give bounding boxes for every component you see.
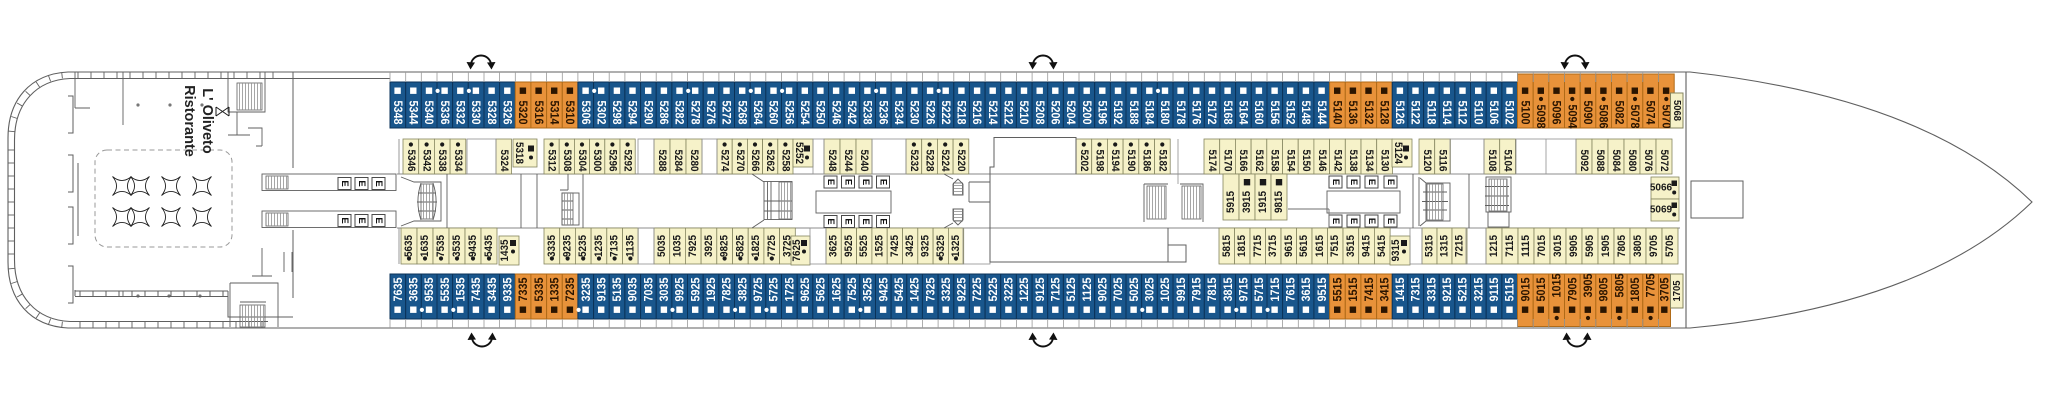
svg-text:7435: 7435 xyxy=(469,277,483,301)
svg-text:5130: 5130 xyxy=(1379,150,1391,172)
svg-text:3325: 3325 xyxy=(939,277,953,301)
svg-text:5725: 5725 xyxy=(767,277,781,301)
svg-text:5078: 5078 xyxy=(1628,105,1642,129)
svg-text:L' Oliveto: L' Oliveto xyxy=(199,88,215,154)
svg-text:5074: 5074 xyxy=(1644,101,1658,125)
svg-text:5298: 5298 xyxy=(610,101,624,125)
svg-text:5104: 5104 xyxy=(1502,150,1514,173)
svg-text:5282: 5282 xyxy=(673,101,687,125)
svg-text:5248: 5248 xyxy=(826,150,838,172)
svg-text:5342: 5342 xyxy=(421,150,433,172)
svg-text:5225: 5225 xyxy=(986,277,1000,301)
svg-text:1805: 1805 xyxy=(1628,277,1642,301)
svg-text:5146: 5146 xyxy=(1316,150,1328,172)
svg-text:5330: 5330 xyxy=(469,101,483,125)
svg-text:3915: 3915 xyxy=(1241,191,1253,213)
svg-text:3515: 3515 xyxy=(1345,235,1357,257)
svg-text:5025: 5025 xyxy=(1127,277,1141,301)
svg-text:5242: 5242 xyxy=(845,101,859,125)
svg-text:5425: 5425 xyxy=(892,277,906,301)
svg-text:5262: 5262 xyxy=(764,150,776,172)
svg-text:3335: 3335 xyxy=(546,235,558,257)
svg-text:5190: 5190 xyxy=(1125,150,1137,172)
svg-text:5314: 5314 xyxy=(547,101,561,125)
svg-text:5156: 5156 xyxy=(1268,101,1282,125)
svg-text:9515: 9515 xyxy=(1315,277,1329,301)
svg-text:5336: 5336 xyxy=(438,101,452,125)
svg-text:5272: 5272 xyxy=(720,101,734,125)
svg-text:5235: 5235 xyxy=(577,235,589,257)
svg-text:5302: 5302 xyxy=(594,101,608,125)
svg-text:9915: 9915 xyxy=(1174,277,1188,301)
svg-text:3435: 3435 xyxy=(485,277,499,301)
svg-text:3035: 3035 xyxy=(657,277,671,301)
svg-text:3635: 3635 xyxy=(407,277,421,301)
svg-text:5258: 5258 xyxy=(779,150,791,172)
svg-text:1415: 1415 xyxy=(1393,277,1407,301)
svg-text:9705: 9705 xyxy=(1648,235,1660,257)
svg-text:1335: 1335 xyxy=(547,277,561,301)
svg-text:5180: 5180 xyxy=(1158,101,1172,125)
svg-text:5625: 5625 xyxy=(814,277,828,301)
svg-text:5296: 5296 xyxy=(606,150,618,172)
svg-text:5218: 5218 xyxy=(955,101,969,125)
svg-text:5094: 5094 xyxy=(1565,105,1579,129)
svg-text:5176: 5176 xyxy=(1190,101,1204,125)
svg-text:E: E xyxy=(878,218,889,224)
svg-text:5066: 5066 xyxy=(1650,183,1673,194)
svg-text:5138: 5138 xyxy=(1347,150,1359,172)
svg-text:5126: 5126 xyxy=(1393,101,1407,125)
svg-text:5122: 5122 xyxy=(1409,101,1423,125)
svg-text:9135: 9135 xyxy=(594,277,608,301)
svg-text:5086: 5086 xyxy=(1597,105,1611,129)
svg-text:5212: 5212 xyxy=(1002,101,1016,125)
svg-text:5276: 5276 xyxy=(704,101,718,125)
svg-text:5166: 5166 xyxy=(1237,150,1249,172)
svg-text:5340: 5340 xyxy=(422,101,436,125)
svg-text:5069: 5069 xyxy=(1650,205,1673,216)
svg-text:7235: 7235 xyxy=(563,277,577,301)
svg-text:5084: 5084 xyxy=(1610,150,1622,173)
svg-text:7525: 7525 xyxy=(845,277,859,301)
svg-text:E: E xyxy=(1366,179,1377,185)
svg-text:E: E xyxy=(339,217,350,223)
svg-text:5515: 5515 xyxy=(1330,277,1344,301)
svg-text:5192: 5192 xyxy=(1111,101,1125,125)
svg-text:9425: 9425 xyxy=(876,277,890,301)
svg-text:3025: 3025 xyxy=(1143,277,1157,301)
svg-text:5236: 5236 xyxy=(876,101,890,125)
svg-text:5196: 5196 xyxy=(1096,101,1110,125)
svg-text:1705: 1705 xyxy=(1671,280,1683,301)
svg-text:5088: 5088 xyxy=(1594,150,1606,172)
svg-text:1235: 1235 xyxy=(593,235,605,257)
svg-text:5635: 5635 xyxy=(403,235,415,257)
svg-text:5184: 5184 xyxy=(1143,101,1157,125)
svg-text:5415: 5415 xyxy=(1376,235,1388,257)
svg-text:5035: 5035 xyxy=(656,235,668,257)
svg-text:3235: 3235 xyxy=(579,277,593,301)
svg-text:5238: 5238 xyxy=(861,101,875,125)
svg-text:7125: 7125 xyxy=(1049,277,1063,301)
svg-text:1025: 1025 xyxy=(1158,277,1172,301)
svg-text:5178: 5178 xyxy=(1174,101,1188,125)
svg-text:7015: 7015 xyxy=(1536,235,1548,257)
svg-text:5186: 5186 xyxy=(1141,150,1153,172)
svg-text:5250: 5250 xyxy=(814,101,828,125)
svg-text:1915: 1915 xyxy=(1257,191,1269,213)
svg-text:1615: 1615 xyxy=(1314,235,1326,257)
svg-text:5015: 5015 xyxy=(1534,277,1548,301)
svg-text:5320: 5320 xyxy=(516,101,530,125)
svg-text:5615: 5615 xyxy=(1298,235,1310,257)
svg-text:5216: 5216 xyxy=(970,101,984,125)
svg-text:1925: 1925 xyxy=(704,277,718,301)
svg-text:9615: 9615 xyxy=(1283,235,1295,257)
svg-text:5162: 5162 xyxy=(1253,150,1265,172)
svg-text:7335: 7335 xyxy=(516,277,530,301)
svg-text:7415: 7415 xyxy=(1362,277,1376,301)
svg-text:5228: 5228 xyxy=(924,150,936,172)
svg-text:1625: 1625 xyxy=(829,277,843,301)
svg-text:5102: 5102 xyxy=(1503,101,1517,125)
svg-text:3705: 3705 xyxy=(1658,277,1672,301)
svg-text:1125: 1125 xyxy=(1080,277,1094,301)
svg-text:E: E xyxy=(825,218,836,224)
svg-text:9235: 9235 xyxy=(562,235,574,257)
svg-text:5286: 5286 xyxy=(657,101,671,125)
svg-text:E: E xyxy=(1385,179,1396,185)
svg-text:5310: 5310 xyxy=(563,101,577,125)
svg-text:5214: 5214 xyxy=(986,101,1000,125)
svg-text:5326: 5326 xyxy=(500,100,514,124)
svg-text:5144: 5144 xyxy=(1315,101,1329,125)
svg-text:5112: 5112 xyxy=(1456,101,1470,125)
svg-text:5288: 5288 xyxy=(656,150,668,172)
svg-text:3815: 3815 xyxy=(1221,277,1235,301)
svg-text:5260: 5260 xyxy=(767,101,781,125)
svg-text:5220: 5220 xyxy=(955,150,967,172)
svg-text:5132: 5132 xyxy=(1362,101,1376,125)
svg-text:9435: 9435 xyxy=(467,235,479,257)
svg-text:5148: 5148 xyxy=(1299,101,1313,125)
svg-text:1535: 1535 xyxy=(454,277,468,301)
svg-text:5164: 5164 xyxy=(1237,101,1251,125)
svg-text:3215: 3215 xyxy=(1471,277,1485,301)
svg-text:3415: 3415 xyxy=(1377,277,1391,301)
svg-text:7425: 7425 xyxy=(889,235,901,257)
svg-text:5266: 5266 xyxy=(749,150,761,172)
svg-text:5142: 5142 xyxy=(1331,150,1343,172)
svg-text:9815: 9815 xyxy=(1273,191,1285,213)
svg-text:1315: 1315 xyxy=(1439,235,1451,257)
svg-text:E: E xyxy=(843,179,854,185)
svg-text:E: E xyxy=(356,180,367,186)
svg-text:5135: 5135 xyxy=(610,277,624,301)
svg-text:9015: 9015 xyxy=(1518,277,1532,301)
svg-text:3925: 3925 xyxy=(703,235,715,257)
svg-text:5136: 5136 xyxy=(1346,101,1360,125)
svg-text:5304: 5304 xyxy=(576,150,588,173)
svg-text:5905: 5905 xyxy=(1584,235,1596,257)
svg-text:7115: 7115 xyxy=(1504,235,1516,257)
svg-text:5316: 5316 xyxy=(532,101,546,125)
svg-text:5318: 5318 xyxy=(513,142,525,164)
svg-text:5256: 5256 xyxy=(782,101,796,125)
svg-text:5110: 5110 xyxy=(1471,101,1485,125)
svg-text:1525: 1525 xyxy=(874,235,886,257)
svg-text:5344: 5344 xyxy=(407,101,421,125)
svg-text:3805: 3805 xyxy=(1632,235,1644,257)
svg-text:5170: 5170 xyxy=(1222,150,1234,172)
svg-text:9715: 9715 xyxy=(1237,277,1251,301)
svg-text:5100: 5100 xyxy=(1518,101,1532,125)
svg-text:5334: 5334 xyxy=(452,150,464,173)
svg-text:5140: 5140 xyxy=(1330,101,1344,125)
svg-text:9325: 9325 xyxy=(919,235,931,257)
svg-text:7635: 7635 xyxy=(391,277,405,301)
svg-text:5172: 5172 xyxy=(1205,101,1219,125)
svg-text:9125: 9125 xyxy=(1033,277,1047,301)
svg-text:5325: 5325 xyxy=(935,235,947,257)
svg-text:5134: 5134 xyxy=(1363,150,1375,173)
svg-text:1425: 1425 xyxy=(908,277,922,301)
svg-text:5254: 5254 xyxy=(798,101,812,125)
svg-text:3535: 3535 xyxy=(451,235,463,257)
svg-text:9905: 9905 xyxy=(1568,235,1580,257)
svg-text:5274: 5274 xyxy=(719,150,731,173)
svg-text:5315: 5315 xyxy=(1424,235,1436,257)
svg-text:5188: 5188 xyxy=(1127,101,1141,125)
svg-text:5106: 5106 xyxy=(1487,101,1501,125)
svg-text:5328: 5328 xyxy=(485,101,499,125)
svg-text:5160: 5160 xyxy=(1252,101,1266,125)
svg-text:5152: 5152 xyxy=(1283,101,1297,125)
svg-text:5200: 5200 xyxy=(1080,101,1094,125)
svg-text:7925: 7925 xyxy=(687,235,699,257)
svg-text:5114: 5114 xyxy=(1440,101,1454,125)
svg-text:5125: 5125 xyxy=(1064,277,1078,301)
svg-text:7225: 7225 xyxy=(970,277,984,301)
svg-text:5294: 5294 xyxy=(626,101,640,125)
svg-text:7325: 7325 xyxy=(923,277,937,301)
svg-text:7025: 7025 xyxy=(1111,277,1125,301)
svg-text:5280: 5280 xyxy=(688,150,700,172)
svg-text:9115: 9115 xyxy=(1487,277,1501,301)
svg-text:5805: 5805 xyxy=(1612,273,1626,297)
svg-text:5198: 5198 xyxy=(1094,150,1106,172)
svg-text:3905: 3905 xyxy=(1581,273,1595,297)
svg-text:7815: 7815 xyxy=(1205,277,1219,301)
svg-text:5284: 5284 xyxy=(672,150,684,173)
svg-text:9225: 9225 xyxy=(955,277,969,301)
svg-text:5308: 5308 xyxy=(561,150,573,172)
svg-text:5815: 5815 xyxy=(1221,235,1233,257)
svg-text:5234: 5234 xyxy=(892,101,906,125)
svg-text:9525: 9525 xyxy=(843,235,855,257)
svg-text:7715: 7715 xyxy=(1252,235,1264,257)
svg-text:E: E xyxy=(356,217,367,223)
svg-text:9805: 9805 xyxy=(1597,277,1611,301)
svg-text:7135: 7135 xyxy=(609,235,621,257)
svg-text:5118: 5118 xyxy=(1424,101,1438,125)
svg-text:5246: 5246 xyxy=(829,101,843,125)
svg-text:5158: 5158 xyxy=(1269,150,1281,172)
svg-text:9925: 9925 xyxy=(673,277,687,301)
svg-text:5076: 5076 xyxy=(1642,150,1654,172)
svg-text:1135: 1135 xyxy=(624,235,636,257)
svg-text:1225: 1225 xyxy=(1017,277,1031,301)
svg-text:3825: 3825 xyxy=(735,277,749,301)
svg-text:E: E xyxy=(1348,179,1359,185)
svg-text:1015: 1015 xyxy=(1550,273,1564,297)
svg-text:1035: 1035 xyxy=(672,235,684,257)
svg-text:1725: 1725 xyxy=(782,277,796,301)
svg-text:5108: 5108 xyxy=(1486,150,1498,172)
svg-text:7515: 7515 xyxy=(1329,235,1341,257)
svg-text:1215: 1215 xyxy=(1488,235,1500,257)
svg-text:5335: 5335 xyxy=(532,277,546,301)
svg-text:9315: 9315 xyxy=(1390,240,1402,262)
svg-text:7725: 7725 xyxy=(766,235,778,257)
svg-text:5182: 5182 xyxy=(1156,150,1168,172)
svg-text:5072: 5072 xyxy=(1658,150,1670,172)
svg-text:E: E xyxy=(1330,218,1341,224)
svg-text:3615: 3615 xyxy=(1299,277,1313,301)
svg-text:5270: 5270 xyxy=(734,150,746,172)
svg-text:7805: 7805 xyxy=(1616,235,1628,257)
svg-text:7905: 7905 xyxy=(1565,277,1579,301)
svg-text:5348: 5348 xyxy=(391,101,405,125)
svg-text:7215: 7215 xyxy=(1454,235,1466,257)
svg-text:E: E xyxy=(1366,218,1377,224)
svg-text:3625: 3625 xyxy=(828,235,840,257)
svg-text:5264: 5264 xyxy=(751,101,765,125)
svg-text:5715: 5715 xyxy=(1252,277,1266,301)
svg-text:E: E xyxy=(860,179,871,185)
svg-text:5150: 5150 xyxy=(1300,150,1312,172)
svg-text:5082: 5082 xyxy=(1612,101,1626,125)
svg-text:E: E xyxy=(825,179,836,185)
svg-text:5435: 5435 xyxy=(483,235,495,257)
svg-text:5224: 5224 xyxy=(939,150,951,173)
svg-text:5124: 5124 xyxy=(1392,142,1404,165)
svg-text:9215: 9215 xyxy=(1440,277,1454,301)
svg-text:9025: 9025 xyxy=(1096,277,1110,301)
svg-text:5338: 5338 xyxy=(436,150,448,172)
svg-text:5300: 5300 xyxy=(591,150,603,172)
svg-text:9335: 9335 xyxy=(500,277,514,301)
svg-text:5092: 5092 xyxy=(1578,150,1590,172)
svg-text:5240: 5240 xyxy=(858,150,870,172)
svg-text:7615: 7615 xyxy=(1283,277,1297,301)
svg-text:5080: 5080 xyxy=(1626,150,1638,172)
svg-text:1815: 1815 xyxy=(1236,235,1248,257)
svg-text:3225: 3225 xyxy=(1002,277,1016,301)
svg-text:5332: 5332 xyxy=(454,101,468,125)
svg-text:5252: 5252 xyxy=(793,142,805,164)
svg-text:1325: 1325 xyxy=(950,235,962,257)
svg-text:7535: 7535 xyxy=(435,235,447,257)
svg-text:7705: 7705 xyxy=(1644,273,1658,297)
svg-text:9535: 9535 xyxy=(422,277,436,301)
svg-text:9035: 9035 xyxy=(626,277,640,301)
svg-text:3015: 3015 xyxy=(1552,235,1564,257)
svg-text:1115: 1115 xyxy=(1520,235,1532,257)
svg-text:5168: 5168 xyxy=(1221,101,1235,125)
svg-text:1825: 1825 xyxy=(750,235,762,257)
svg-text:5068: 5068 xyxy=(1671,100,1683,121)
svg-text:E: E xyxy=(339,180,350,186)
svg-text:5194: 5194 xyxy=(1109,150,1121,173)
svg-text:3525: 3525 xyxy=(861,277,875,301)
svg-text:5535: 5535 xyxy=(438,277,452,301)
svg-text:5705: 5705 xyxy=(1664,235,1676,257)
svg-text:3425: 3425 xyxy=(904,235,916,257)
svg-text:E: E xyxy=(1385,218,1396,224)
svg-text:5226: 5226 xyxy=(923,101,937,125)
svg-text:5292: 5292 xyxy=(622,150,634,172)
svg-text:5215: 5215 xyxy=(1456,277,1470,301)
svg-text:7035: 7035 xyxy=(641,277,655,301)
svg-text:1715: 1715 xyxy=(1268,277,1282,301)
svg-text:5090: 5090 xyxy=(1581,101,1595,125)
svg-text:7315: 7315 xyxy=(1409,277,1423,301)
svg-text:5346: 5346 xyxy=(405,150,417,172)
svg-text:5825: 5825 xyxy=(734,235,746,257)
svg-text:5268: 5268 xyxy=(735,101,749,125)
svg-text:5210: 5210 xyxy=(1017,101,1031,125)
svg-text:1515: 1515 xyxy=(1346,277,1360,301)
svg-text:1905: 1905 xyxy=(1600,235,1612,257)
svg-text:5525: 5525 xyxy=(858,235,870,257)
svg-text:E: E xyxy=(878,179,889,185)
svg-text:1635: 1635 xyxy=(419,235,431,257)
svg-text:9415: 9415 xyxy=(1361,235,1373,257)
svg-text:5312: 5312 xyxy=(546,150,558,172)
svg-text:5230: 5230 xyxy=(908,101,922,125)
svg-text:5244: 5244 xyxy=(842,150,854,173)
svg-text:Ristorante: Ristorante xyxy=(181,85,197,157)
svg-text:5204: 5204 xyxy=(1064,101,1078,125)
svg-text:5202: 5202 xyxy=(1078,150,1090,172)
svg-text:9725: 9725 xyxy=(751,277,765,301)
svg-text:5116: 5116 xyxy=(1437,150,1449,172)
svg-text:7625: 7625 xyxy=(791,240,803,262)
svg-text:5915: 5915 xyxy=(1225,191,1237,213)
svg-text:3315: 3315 xyxy=(1424,277,1438,301)
svg-text:E: E xyxy=(860,218,871,224)
svg-text:5120: 5120 xyxy=(1421,150,1433,172)
svg-text:E: E xyxy=(373,217,384,223)
svg-text:5115: 5115 xyxy=(1503,277,1517,301)
svg-text:5098: 5098 xyxy=(1534,105,1548,129)
svg-text:1435: 1435 xyxy=(499,240,511,262)
svg-text:5222: 5222 xyxy=(939,101,953,125)
svg-text:5925: 5925 xyxy=(688,277,702,301)
svg-text:9625: 9625 xyxy=(798,277,812,301)
svg-text:5154: 5154 xyxy=(1284,150,1296,173)
svg-text:5306: 5306 xyxy=(579,101,593,125)
svg-text:E: E xyxy=(843,218,854,224)
svg-text:3715: 3715 xyxy=(1267,235,1279,257)
svg-text:5174: 5174 xyxy=(1206,150,1218,173)
svg-text:5290: 5290 xyxy=(641,101,655,125)
svg-text:5206: 5206 xyxy=(1049,101,1063,125)
svg-text:5324: 5324 xyxy=(498,150,510,173)
svg-text:5208: 5208 xyxy=(1033,101,1047,125)
